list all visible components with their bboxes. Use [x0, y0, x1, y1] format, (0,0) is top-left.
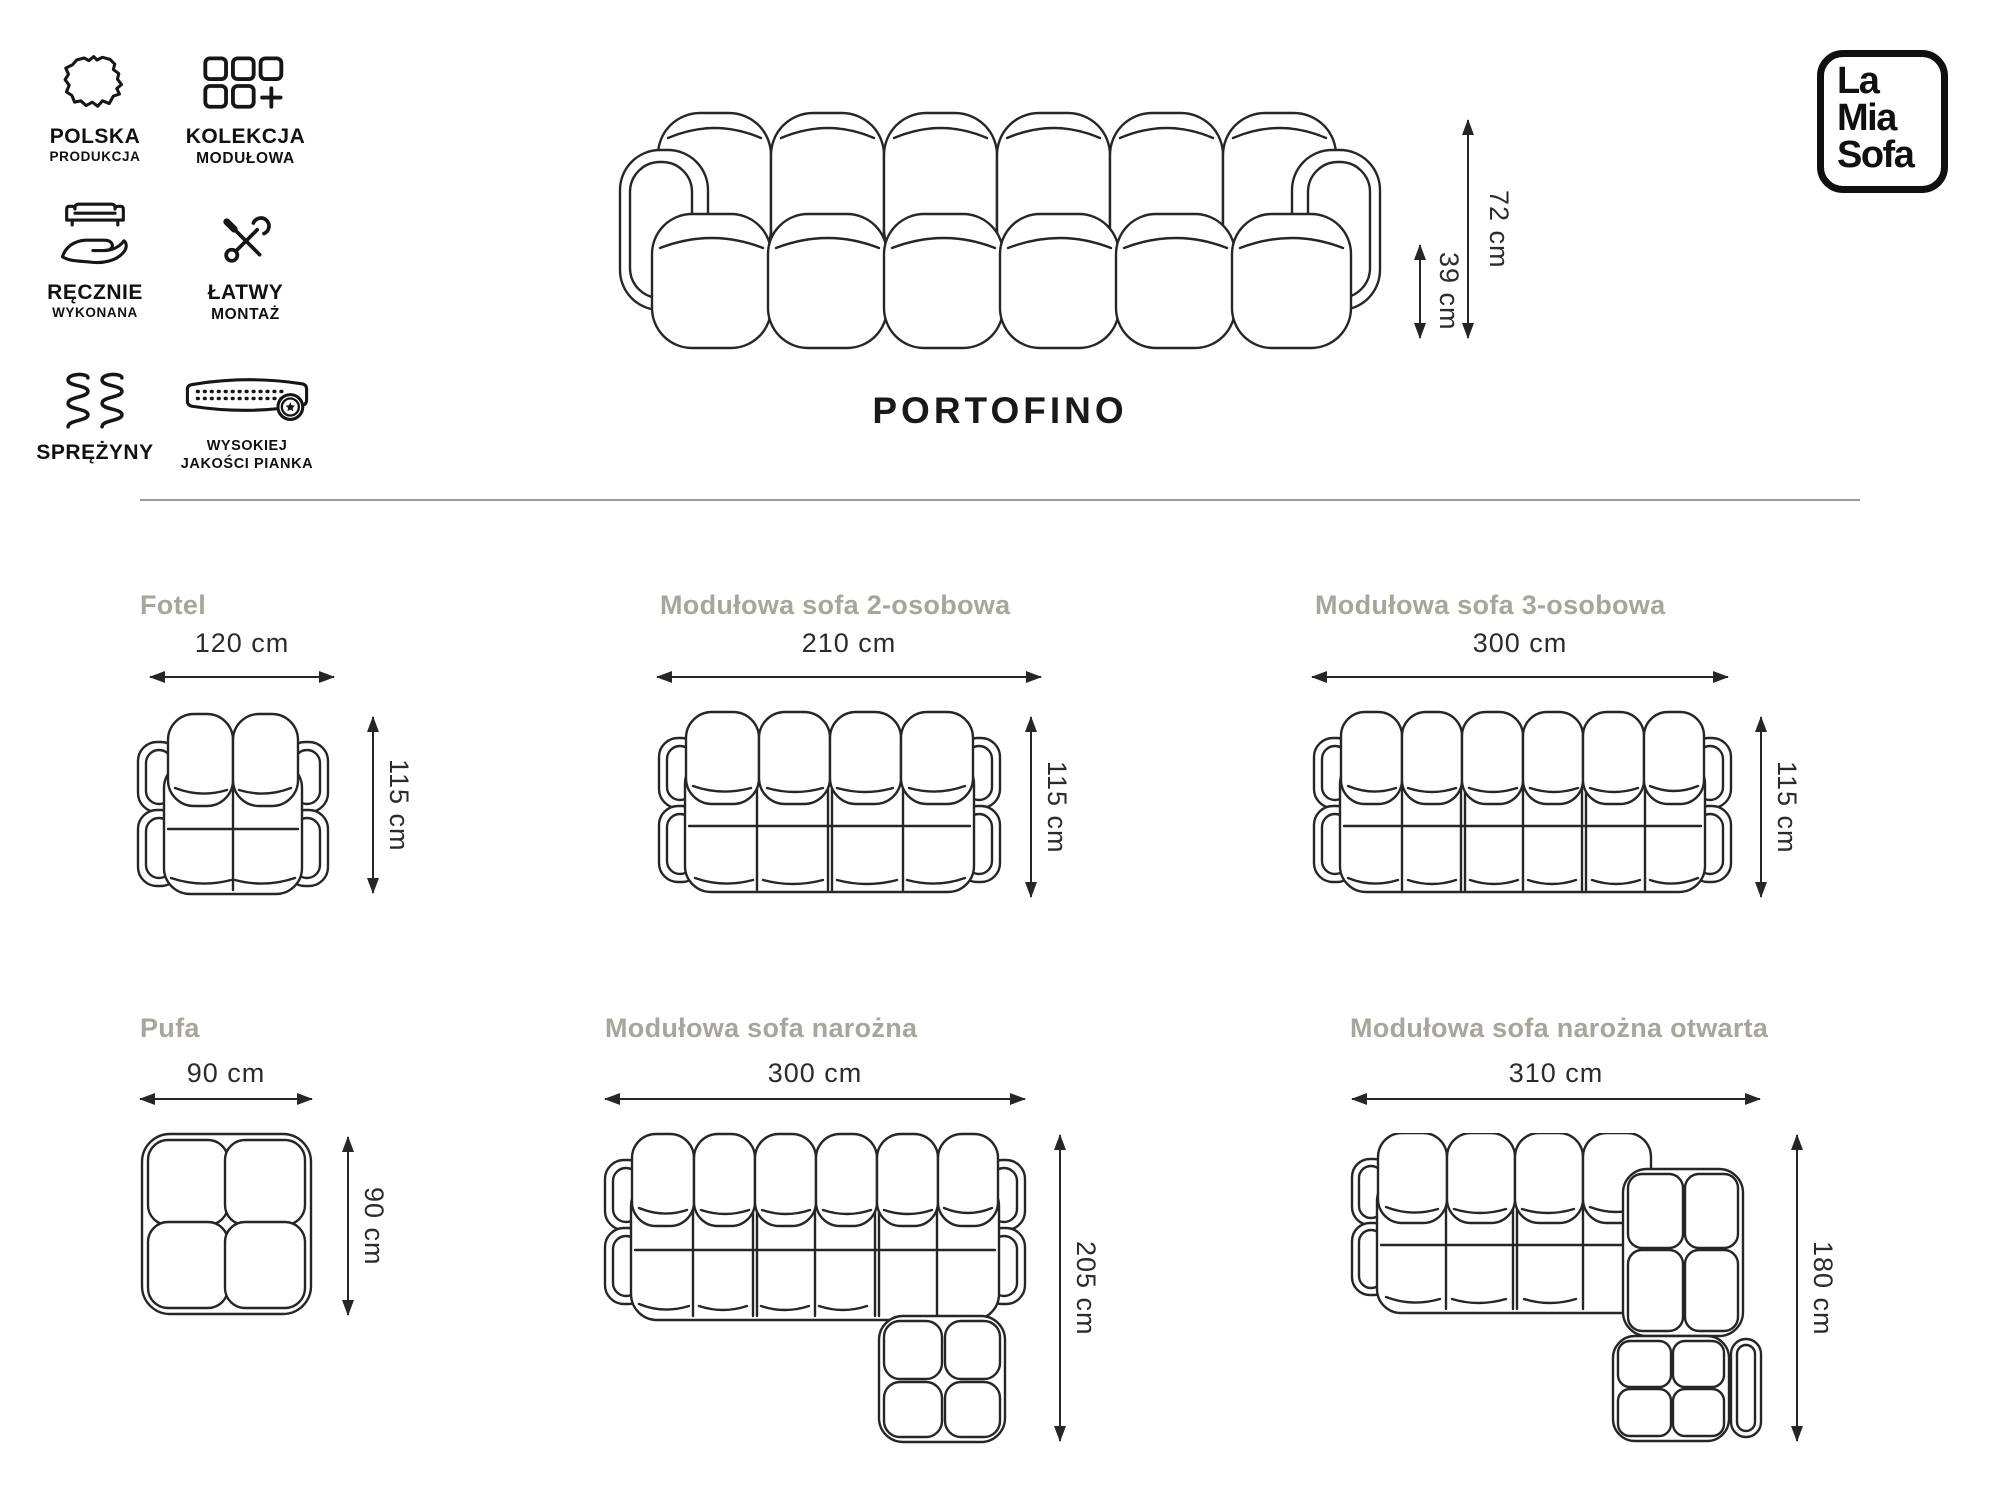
badge-sublabel: MODUŁOWA — [196, 149, 295, 168]
variant-title: Modułowa sofa narożna — [605, 1013, 917, 1044]
depth-arrow — [347, 1137, 349, 1315]
logo-line-3: Sofa — [1837, 137, 1941, 174]
la-mia-sofa-logo: La Mia Sofa — [1817, 50, 1948, 193]
variant-sofa-3-osobowa: Modułowa sofa 3-osobowa 300 cm 115 cm — [1300, 590, 1820, 930]
badge-kolekcja-modulowa: KOLEKCJA MODUŁOWA — [178, 36, 313, 169]
springs-icon — [61, 368, 129, 432]
depth-label: 115 cm — [382, 717, 414, 893]
badge-sublabel: WYKONANA — [52, 305, 138, 322]
width-arrow — [1312, 676, 1728, 678]
width-label: 210 cm — [657, 628, 1041, 659]
poland-map-icon — [61, 36, 129, 116]
sofa-2-top-view — [657, 710, 1002, 900]
width-label: 300 cm — [1312, 628, 1728, 659]
variant-sofa-narozna-otwarta: Modułowa sofa narożna otwarta 310 cm 180… — [1330, 1010, 1860, 1450]
easy-assembly-icon — [215, 192, 277, 272]
width-label: 120 cm — [150, 628, 334, 659]
badge-label: RĘCZNIE — [47, 280, 143, 305]
depth-label: 205 cm — [1069, 1135, 1101, 1441]
product-name: PORTOFINO — [700, 390, 1300, 432]
badge-label: ŁATWY — [208, 280, 284, 305]
sofa-front-view-drawing — [610, 88, 1390, 360]
foam-quality-icon — [182, 368, 312, 432]
width-label: 300 cm — [605, 1058, 1025, 1089]
depth-label: 115 cm — [1040, 717, 1072, 897]
width-arrow — [605, 1098, 1025, 1100]
variant-title: Modułowa sofa 2-osobowa — [660, 590, 1010, 621]
section-divider — [140, 499, 1860, 501]
badge-pianka: WYSOKIEJ JAKOŚCI PIANKA — [172, 368, 322, 474]
variant-pufa: Pufa 90 cm 90 cm — [110, 1010, 440, 1450]
variant-title: Fotel — [140, 590, 206, 621]
badge-label: POLSKA — [50, 124, 141, 149]
depth-label: 180 cm — [1806, 1135, 1838, 1441]
badge-label: SPRĘŻYNY — [36, 440, 153, 465]
depth-label: 90 cm — [357, 1137, 389, 1315]
total-height-arrow — [1467, 120, 1469, 338]
depth-arrow — [1760, 717, 1762, 897]
fotel-top-view — [135, 712, 331, 898]
sofa-narozna-otwarta-top-view — [1350, 1133, 1763, 1443]
logo-line-1: La — [1837, 63, 1941, 100]
depth-arrow — [1030, 717, 1032, 897]
variant-sofa-narozna: Modułowa sofa narożna 300 cm 205 cm — [580, 1010, 1120, 1450]
logo-line-2: Mia — [1837, 100, 1941, 137]
modular-collection-icon — [203, 36, 289, 116]
width-label: 310 cm — [1352, 1058, 1760, 1089]
depth-arrow — [1796, 1135, 1798, 1441]
depth-arrow — [372, 717, 374, 893]
pufa-top-view — [140, 1132, 313, 1316]
sofa-narozna-top-view — [603, 1132, 1027, 1444]
badge-polska-produkcja: POLSKA PRODUKCJA — [35, 36, 155, 166]
depth-arrow — [1059, 1135, 1061, 1441]
handmade-icon — [57, 192, 133, 272]
badge-sprezyny: SPRĘŻYNY — [35, 368, 155, 465]
badge-latwy-montaz: ŁATWY MONTAŻ — [178, 192, 313, 325]
badge-sublabel: PRODUKCJA — [50, 149, 141, 166]
width-arrow — [150, 676, 334, 678]
variant-sofa-2-osobowa: Modułowa sofa 2-osobowa 210 cm 115 cm — [640, 590, 1090, 930]
badge-sublabel: MONTAŻ — [211, 305, 280, 324]
seat-height-label: 39 cm — [1432, 245, 1464, 338]
width-label: 90 cm — [140, 1058, 312, 1089]
total-height-label: 72 cm — [1482, 120, 1514, 338]
width-arrow — [140, 1098, 312, 1100]
width-arrow — [657, 676, 1041, 678]
seat-height-arrow — [1419, 245, 1421, 338]
badge-label: KOLEKCJA — [186, 124, 306, 149]
sofa-3-top-view — [1312, 710, 1733, 900]
badge-recznie-wykonana: RĘCZNIE WYKONANA — [35, 192, 155, 322]
badge-label: WYSOKIEJ — [207, 438, 288, 455]
width-arrow — [1352, 1098, 1760, 1100]
variant-title: Modułowa sofa 3-osobowa — [1315, 590, 1665, 621]
badge-sublabel: JAKOŚCI PIANKA — [181, 455, 313, 473]
variant-fotel: Fotel 120 cm 115 cm — [110, 590, 440, 930]
depth-label: 115 cm — [1770, 717, 1802, 897]
variant-title: Pufa — [140, 1013, 200, 1044]
variant-title: Modułowa sofa narożna otwarta — [1350, 1013, 1768, 1044]
